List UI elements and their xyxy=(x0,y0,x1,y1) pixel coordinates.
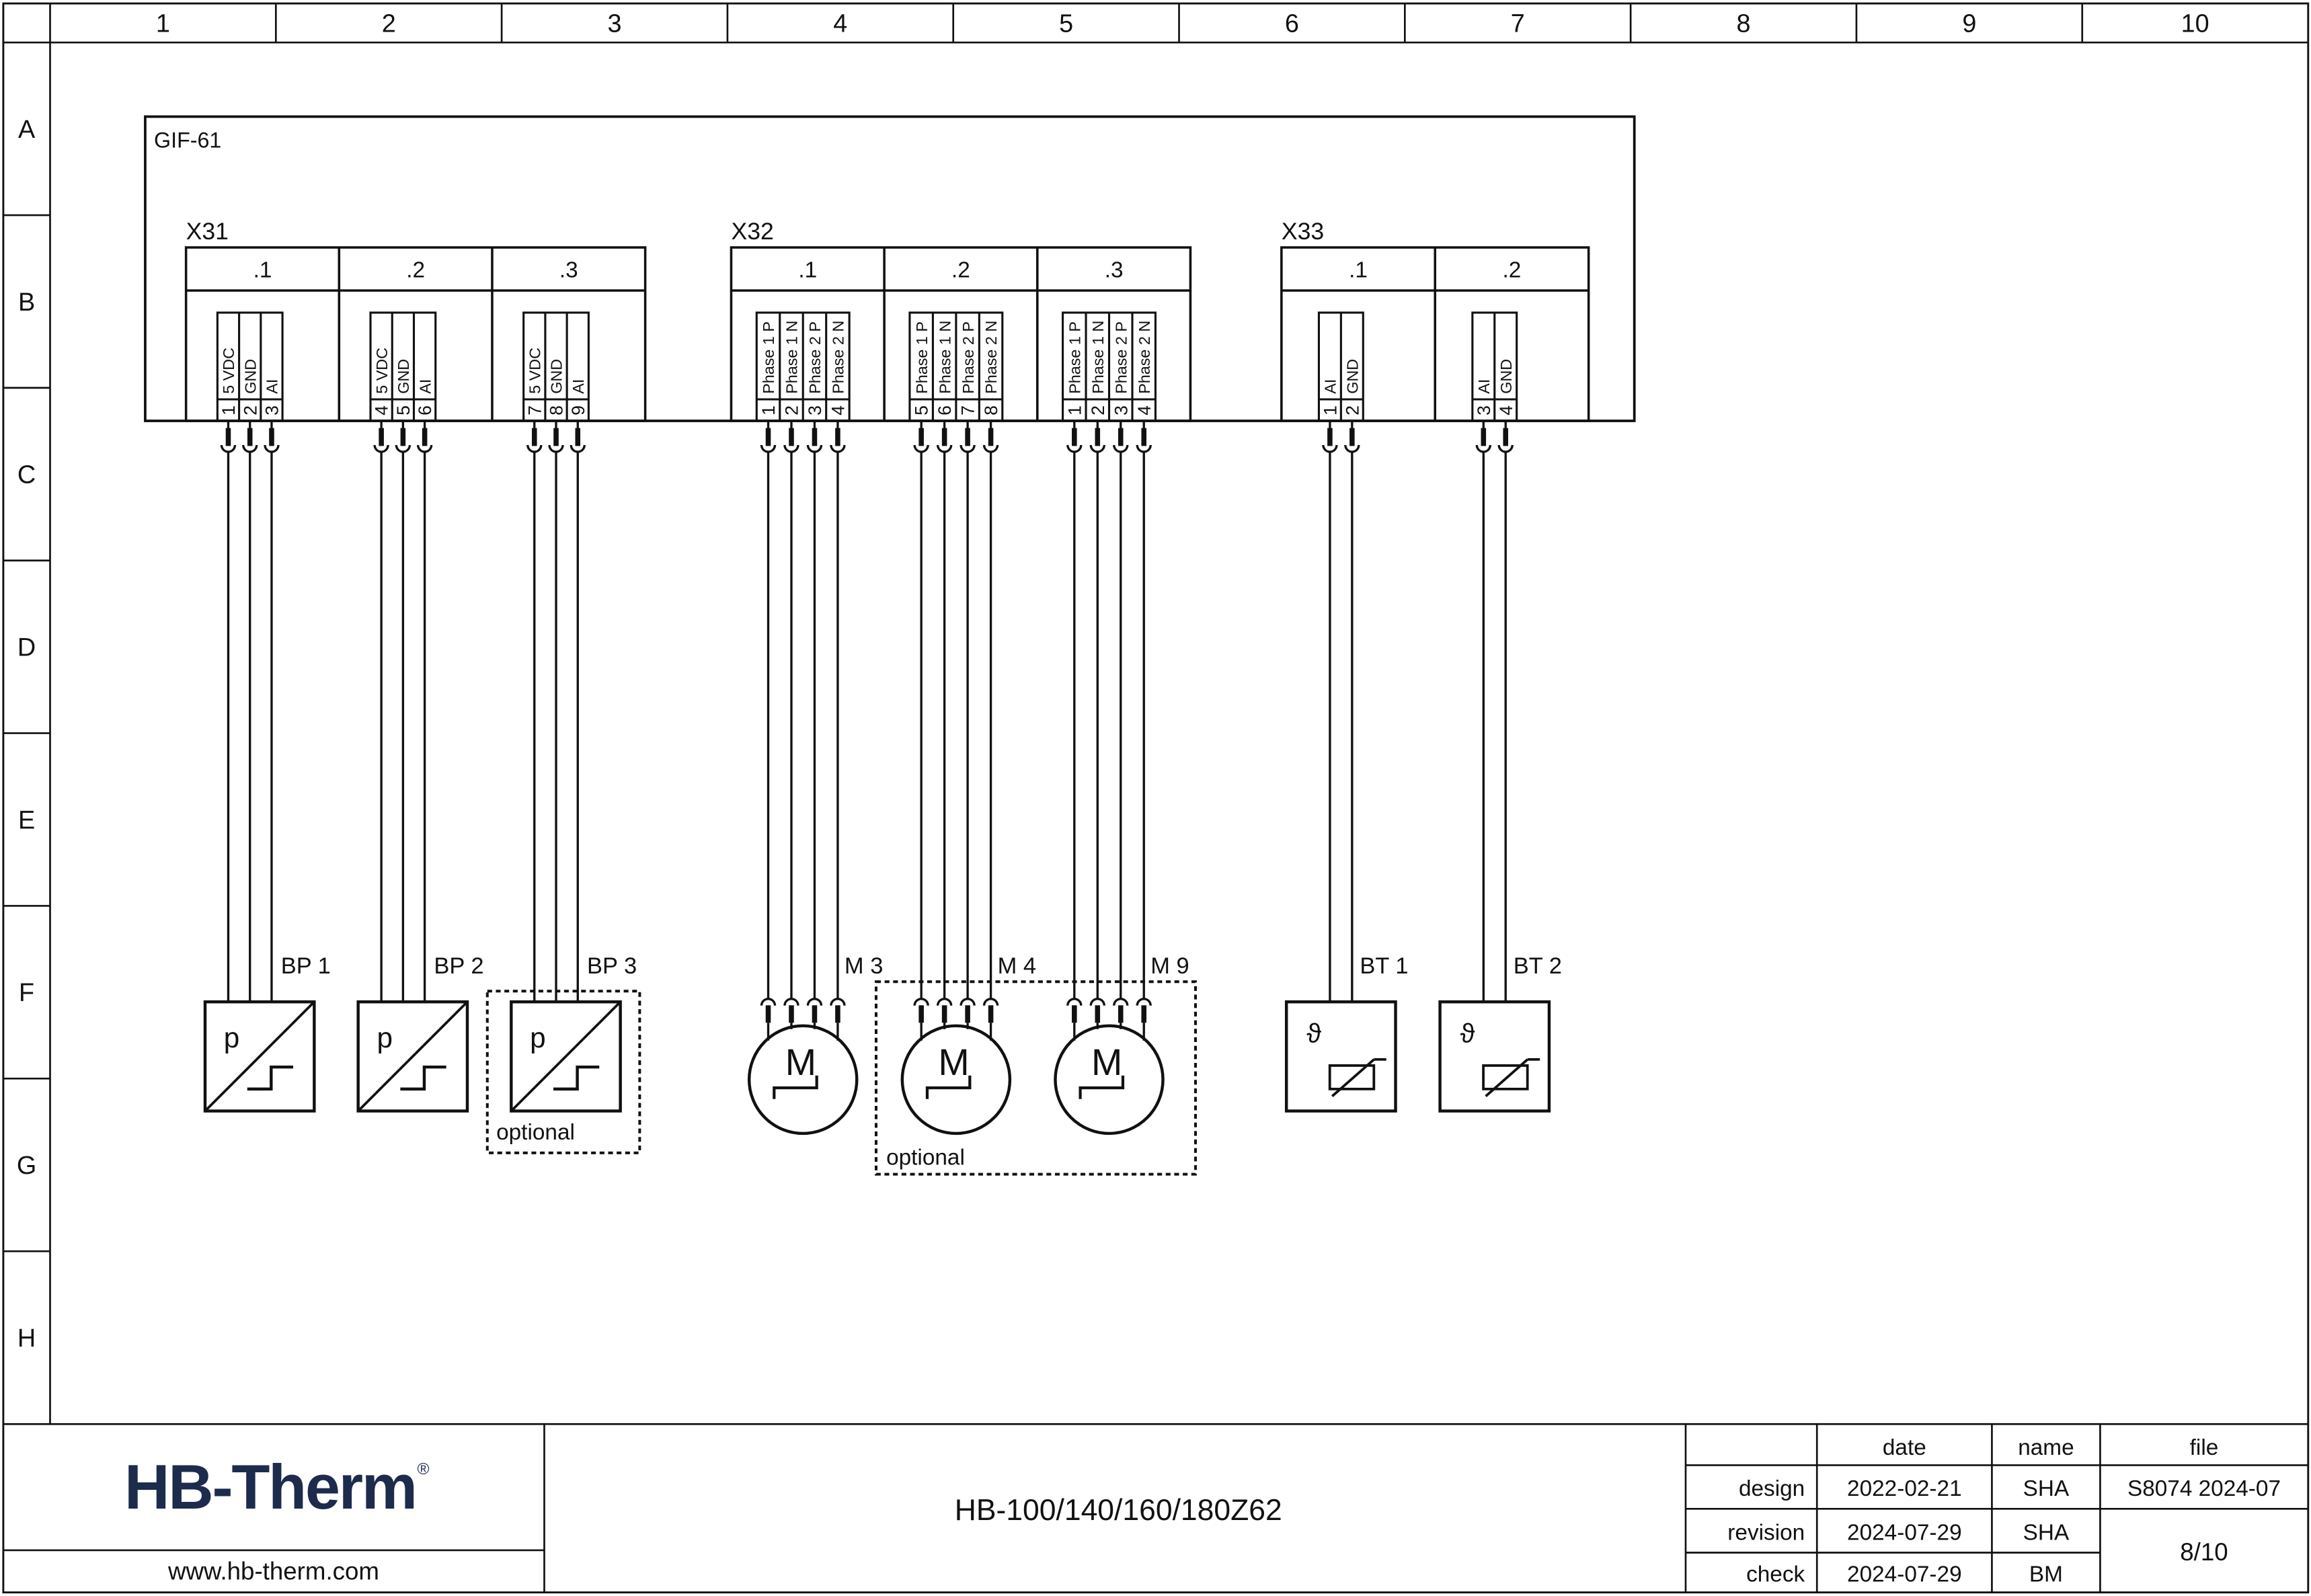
grid-row-label: E xyxy=(18,806,35,834)
pin-signal-label: GND xyxy=(1344,359,1362,394)
plug-pin-icon xyxy=(1141,428,1146,446)
grid-row-label: A xyxy=(18,116,36,144)
plug-pin-icon xyxy=(835,428,840,446)
pin-signal-label: Phase 1 N xyxy=(936,321,953,394)
plug-pin-icon xyxy=(1349,428,1355,446)
pin-number: 9 xyxy=(568,405,588,415)
table-header-date: date xyxy=(1883,1435,1926,1460)
row-label-design: design xyxy=(1739,1476,1805,1501)
plug-pin-icon xyxy=(1095,428,1101,446)
device-label: BP 2 xyxy=(434,953,483,979)
device-label: BP 1 xyxy=(281,953,331,979)
plug-pin-icon xyxy=(1095,1005,1101,1023)
plug-pin-icon xyxy=(532,428,537,446)
company-website: www.hb-therm.com xyxy=(167,1558,379,1585)
plug-pin-icon xyxy=(1118,1005,1124,1023)
device-label: BT 2 xyxy=(1514,953,1562,979)
plug-pin-icon xyxy=(1503,428,1508,446)
plug-pin-icon xyxy=(918,428,924,446)
pin-signal-label: 5 VDC xyxy=(373,348,391,394)
motor-symbol: M xyxy=(1091,1041,1122,1083)
plug-pin-icon xyxy=(942,428,947,446)
table-header-name: name xyxy=(2018,1435,2074,1460)
plug-pin-icon xyxy=(789,428,794,446)
pin-number: 3 xyxy=(1474,405,1494,415)
grid-column-label: 1 xyxy=(156,10,170,38)
company-logo: HB-Therm xyxy=(124,1451,416,1522)
pin-signal-label: 5 VDC xyxy=(526,348,543,394)
connector-id-label: X31 xyxy=(186,218,229,245)
section-label: .1 xyxy=(798,258,817,283)
theta-symbol: ϑ xyxy=(1460,1019,1475,1048)
pin-number: 8 xyxy=(547,405,567,415)
section-label: .2 xyxy=(406,258,425,283)
plug-pin-icon xyxy=(812,428,818,446)
pin-signal-label: GND xyxy=(395,359,412,394)
pin-signal-label: Phase 2 P xyxy=(959,321,977,394)
section-label: .1 xyxy=(1349,258,1368,283)
pin-signal-label: Phase 1 P xyxy=(760,321,777,394)
plug-pin-icon xyxy=(1141,1005,1146,1023)
plug-pin-icon xyxy=(988,1005,994,1023)
pin-number: 6 xyxy=(935,405,955,415)
grid-column-label: 7 xyxy=(1511,10,1525,38)
plug-pin-icon xyxy=(553,428,559,446)
plug-pin-icon xyxy=(812,1005,818,1023)
pin-number: 4 xyxy=(1496,405,1516,415)
plug-pin-icon xyxy=(766,1005,771,1023)
pin-number: 2 xyxy=(782,405,802,415)
plug-pin-icon xyxy=(1072,428,1077,446)
device-label: M 3 xyxy=(845,953,883,979)
pin-signal-label: Phase 2 P xyxy=(806,321,824,394)
theta-symbol: ϑ xyxy=(1306,1019,1321,1048)
plug-pin-icon xyxy=(789,1005,794,1023)
pin-number: 8 xyxy=(981,405,1001,415)
plug-pin-icon xyxy=(575,428,580,446)
section-label: .2 xyxy=(951,258,970,283)
plug-pin-icon xyxy=(269,428,274,446)
row-label-revision: revision xyxy=(1727,1520,1805,1545)
pin-signal-label: Phase 1 P xyxy=(913,321,931,394)
grid-row-label: F xyxy=(19,979,34,1007)
pressure-symbol: p xyxy=(377,1022,392,1053)
pin-number: 1 xyxy=(758,405,779,415)
pin-number: 4 xyxy=(372,405,392,415)
grid-column-label: 4 xyxy=(833,10,847,38)
pin-number: 5 xyxy=(912,405,932,415)
plug-pin-icon xyxy=(379,428,384,446)
check-name: BM xyxy=(2029,1562,2063,1587)
grid-column-label: 8 xyxy=(1737,10,1751,38)
plug-pin-icon xyxy=(1118,428,1124,446)
grid-column-label: 10 xyxy=(2181,10,2209,38)
page-background xyxy=(0,0,2311,1596)
grid-row-label: H xyxy=(17,1324,36,1353)
connector-id-label: X33 xyxy=(1282,218,1324,245)
grid-column-label: 2 xyxy=(382,10,396,38)
optional-label: optional xyxy=(496,1120,575,1145)
pin-number: 3 xyxy=(262,405,282,415)
plug-pin-icon xyxy=(247,428,253,446)
grid-column-label: 6 xyxy=(1285,10,1299,38)
section-label: .2 xyxy=(1503,258,1522,283)
pin-number: 2 xyxy=(1342,405,1362,415)
pressure-symbol: p xyxy=(530,1022,546,1053)
grid-row-label: G xyxy=(17,1152,36,1180)
grid-column-label: 5 xyxy=(1059,10,1073,38)
page-number: 8/10 xyxy=(2180,1538,2228,1566)
pin-signal-label: 5 VDC xyxy=(220,348,237,394)
pressure-symbol: p xyxy=(224,1022,240,1053)
plug-pin-icon xyxy=(965,1005,970,1023)
motor-symbol: M xyxy=(785,1041,816,1083)
pin-number: 3 xyxy=(1111,405,1131,415)
pin-signal-label: Phase 1 N xyxy=(1089,321,1107,394)
design-name: SHA xyxy=(2023,1476,2070,1501)
plug-pin-icon xyxy=(965,428,970,446)
wiring-diagram: 12345678910ABCDEFGHGIF-61X31.15 VDC1GND2… xyxy=(0,0,2311,1596)
section-label: .1 xyxy=(253,258,272,283)
plug-pin-icon xyxy=(835,1005,840,1023)
pin-number: 7 xyxy=(524,405,545,415)
pin-signal-label: GND xyxy=(241,359,259,394)
pin-signal-label: AI xyxy=(264,379,281,394)
device-label: M 4 xyxy=(998,953,1036,979)
revision-date: 2024-07-29 xyxy=(1847,1520,1962,1545)
pin-signal-label: Phase 2 P xyxy=(1112,321,1130,394)
pin-signal-label: Phase 1 P xyxy=(1066,321,1083,394)
plug-pin-icon xyxy=(918,1005,924,1023)
pin-signal-label: AI xyxy=(1475,379,1493,394)
section-label: .3 xyxy=(1105,258,1124,283)
plug-pin-icon xyxy=(226,428,231,446)
revision-name: SHA xyxy=(2023,1520,2070,1545)
design-date: 2022-02-21 xyxy=(1847,1476,1962,1501)
pin-number: 1 xyxy=(1320,405,1340,415)
grid-column-label: 9 xyxy=(1962,10,1976,38)
plug-pin-icon xyxy=(766,428,771,446)
device-label: M 9 xyxy=(1150,953,1189,979)
plug-pin-icon xyxy=(942,1005,947,1023)
grid-row-label: D xyxy=(17,634,36,662)
pin-signal-label: Phase 2 N xyxy=(830,321,847,394)
pin-number: 2 xyxy=(1088,405,1108,415)
registered-trademark-icon: ® xyxy=(417,1460,429,1478)
pin-signal-label: AI xyxy=(570,379,587,394)
file-id: S8074 2024-07 xyxy=(2127,1476,2281,1501)
grid-row-label: C xyxy=(17,461,36,489)
pin-number: 4 xyxy=(828,405,848,415)
optional-label: optional xyxy=(886,1146,965,1170)
grid-row-label: B xyxy=(18,288,35,317)
pin-signal-label: GND xyxy=(548,359,565,394)
plug-pin-icon xyxy=(401,428,406,446)
device-label: BP 3 xyxy=(587,953,637,979)
table-header-file: file xyxy=(2190,1435,2219,1460)
pin-number: 4 xyxy=(1134,405,1154,415)
pin-number: 1 xyxy=(1064,405,1085,415)
check-date: 2024-07-29 xyxy=(1847,1562,1962,1587)
pin-number: 5 xyxy=(393,405,414,415)
plug-pin-icon xyxy=(422,428,428,446)
connector-id-label: X32 xyxy=(731,218,773,245)
pin-signal-label: AI xyxy=(416,379,434,394)
pin-signal-label: Phase 2 N xyxy=(982,321,1000,394)
drawing-title: HB-100/140/160/180Z62 xyxy=(955,1494,1282,1527)
device-label: BT 1 xyxy=(1360,953,1408,979)
grid-column-label: 3 xyxy=(607,10,621,38)
pin-signal-label: Phase 1 N xyxy=(783,321,801,394)
pin-number: 6 xyxy=(415,405,435,415)
schematic-page: 12345678910ABCDEFGHGIF-61X31.15 VDC1GND2… xyxy=(0,0,2311,1596)
pin-signal-label: GND xyxy=(1497,359,1515,394)
schematic-content: 12345678910ABCDEFGHGIF-61X31.15 VDC1GND2… xyxy=(0,0,2311,1596)
plug-pin-icon xyxy=(1481,428,1487,446)
pin-number: 7 xyxy=(958,405,978,415)
pin-number: 3 xyxy=(805,405,825,415)
section-label: .3 xyxy=(559,258,578,283)
pin-signal-label: Phase 2 N xyxy=(1136,321,1153,394)
plug-pin-icon xyxy=(1072,1005,1077,1023)
pin-number: 2 xyxy=(240,405,260,415)
pin-number: 1 xyxy=(219,405,239,415)
plug-pin-icon xyxy=(988,428,994,446)
frame-label: GIF-61 xyxy=(154,128,221,152)
plug-pin-icon xyxy=(1327,428,1333,446)
row-label-check: check xyxy=(1746,1562,1805,1587)
pin-signal-label: AI xyxy=(1322,379,1339,394)
motor-symbol: M xyxy=(938,1041,969,1083)
